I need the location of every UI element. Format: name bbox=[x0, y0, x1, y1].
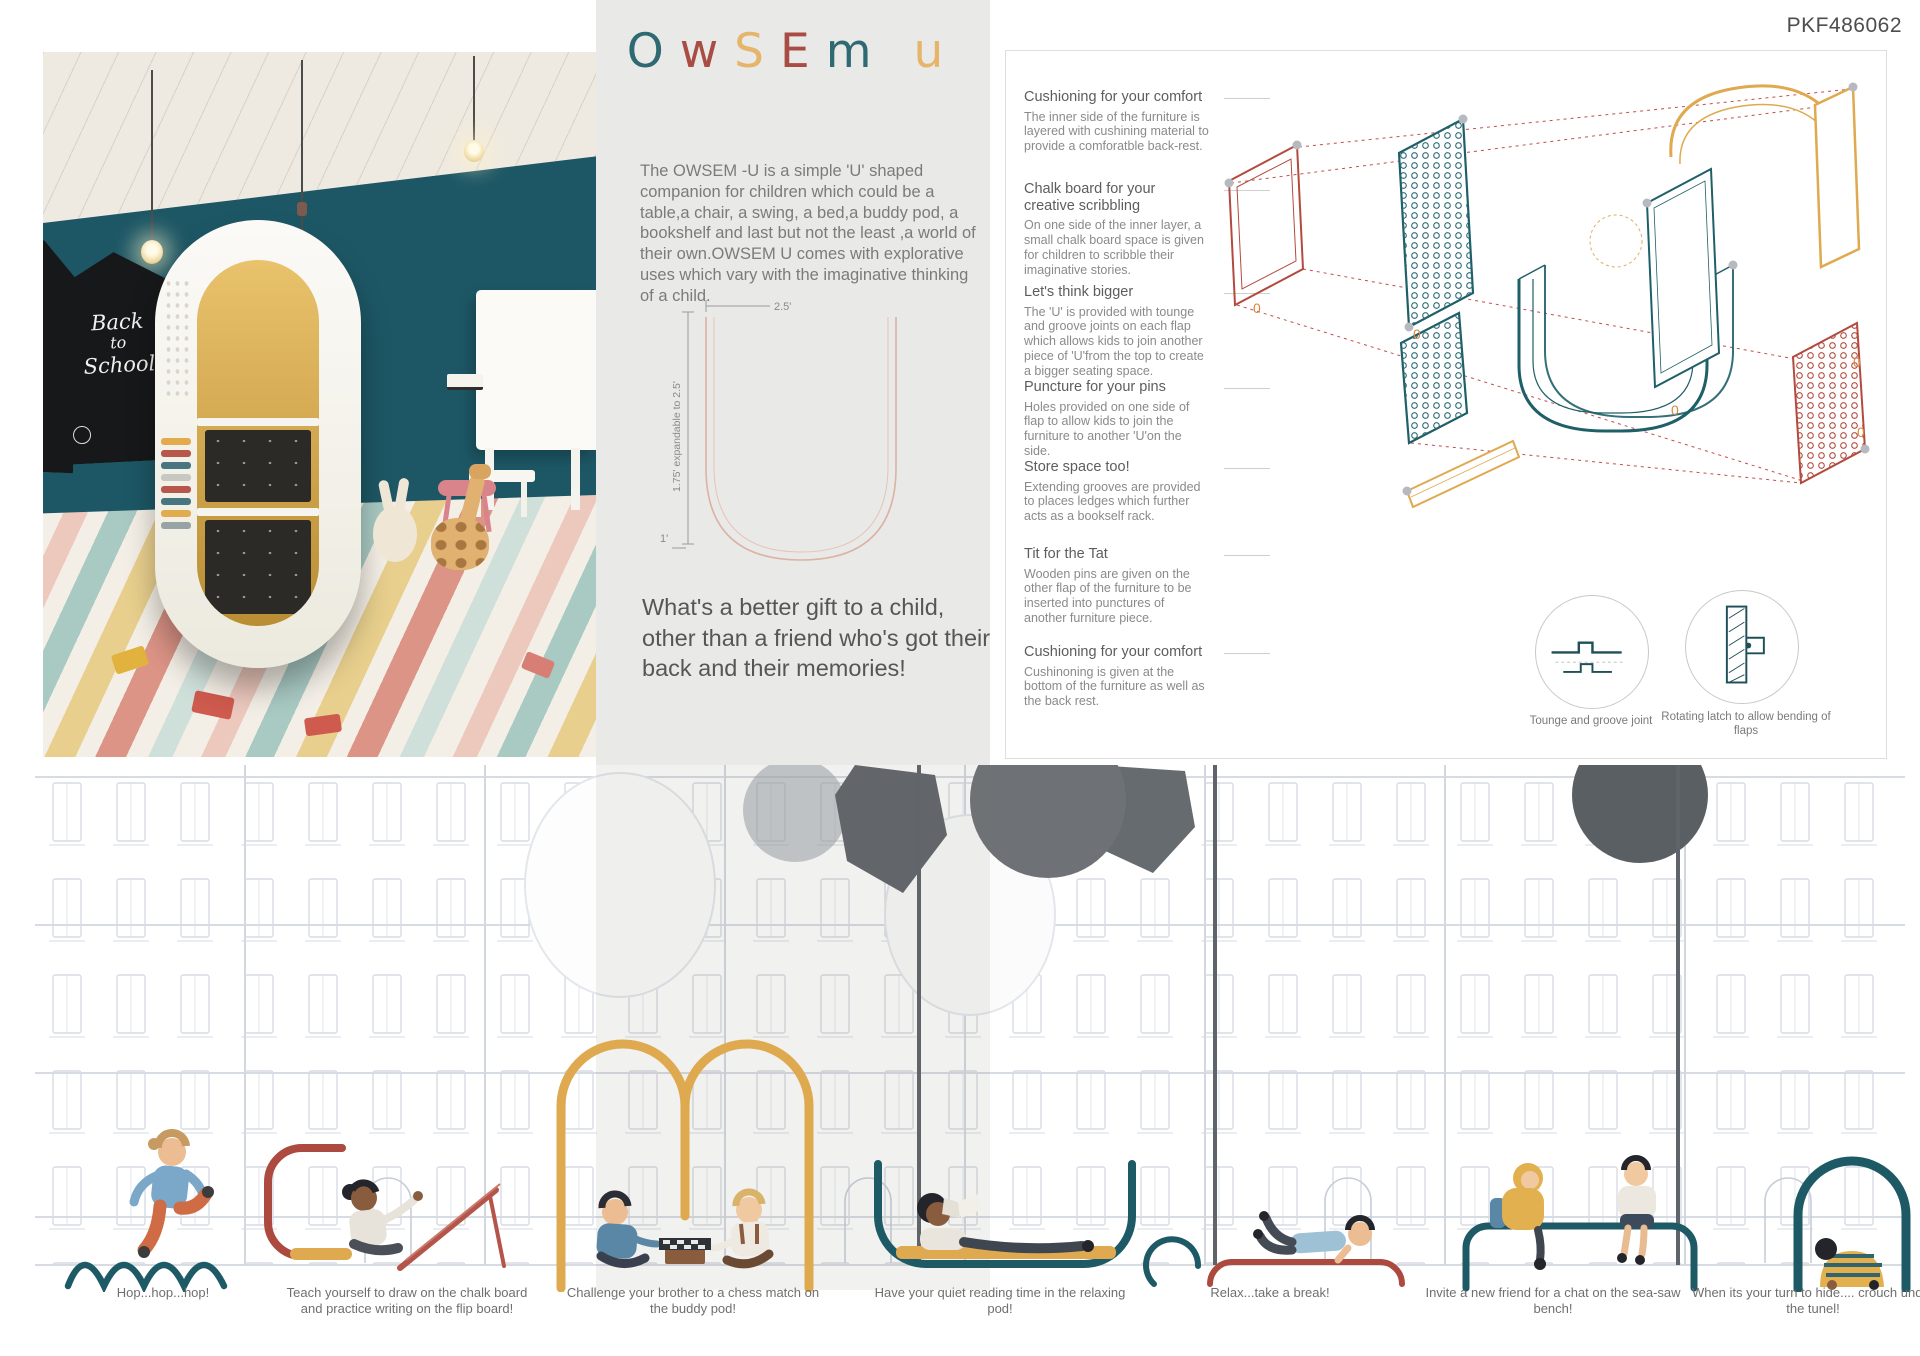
plush-bunny bbox=[373, 492, 423, 566]
feature-think-bigger: Let's think bigger The 'U' is provided w… bbox=[1024, 284, 1209, 378]
piano-leg bbox=[571, 448, 580, 510]
colored-louver-slats bbox=[161, 438, 191, 534]
bench-leg bbox=[521, 481, 527, 517]
leader-line bbox=[1224, 653, 1270, 654]
pendant-bulb bbox=[464, 140, 484, 162]
chess-kid-right bbox=[711, 1192, 770, 1264]
reading-child bbox=[917, 1193, 1094, 1252]
plush-giraffe bbox=[425, 490, 495, 574]
svg-text:0: 0 bbox=[1253, 300, 1261, 316]
red-perforated-flap bbox=[1793, 323, 1865, 483]
tongue-groove-drawing bbox=[1536, 596, 1645, 705]
pendant-cord bbox=[151, 70, 153, 242]
scene-caption: Invite a new friend for a chat on the se… bbox=[1423, 1285, 1683, 1318]
chalk-panel bbox=[205, 520, 311, 614]
chalk-globe-doodle bbox=[73, 426, 92, 445]
scene-hop-illustration bbox=[60, 1118, 230, 1292]
chess-set bbox=[659, 1238, 711, 1264]
feature-heading: Let's think bigger bbox=[1024, 284, 1209, 301]
white-flap-panel bbox=[1647, 169, 1719, 387]
furniture-interior bbox=[197, 260, 319, 626]
drawing-girl bbox=[342, 1183, 423, 1250]
product-title: OwSEmu bbox=[596, 24, 990, 79]
dimension-diagram: 2.5' 1.75' expandable to 2.5' 1' bbox=[652, 292, 932, 582]
piano-keys bbox=[447, 374, 483, 390]
feature-body: On one side of the inner layer, a small … bbox=[1024, 218, 1209, 277]
highlight-circle bbox=[1590, 215, 1642, 267]
scene-caption: Challenge your brother to a chess match … bbox=[563, 1285, 823, 1318]
feature-body: Wooden pins are given on the other flap … bbox=[1024, 567, 1209, 626]
feature-heading: Cushioning for your comfort bbox=[1024, 89, 1209, 106]
entry-code: PKF486062 bbox=[1787, 14, 1902, 38]
yellow-side-panel bbox=[1815, 87, 1859, 267]
scene-chalkboard-illustration bbox=[250, 1090, 530, 1292]
feature-storage: Store space too! Extending grooves are p… bbox=[1024, 459, 1209, 524]
red-bench bbox=[1210, 1262, 1402, 1284]
scene-buddy-pod-illustration bbox=[545, 1000, 825, 1292]
zero-markers: 0 0 0 0 0 bbox=[1253, 300, 1865, 440]
design-board: Back to School ✦ bbox=[0, 0, 1920, 1356]
pendant-bulb bbox=[141, 240, 163, 264]
chess-kid-left bbox=[596, 1194, 657, 1264]
feature-heading: Chalk board for your creative scribbling bbox=[1024, 181, 1209, 214]
svg-text:0: 0 bbox=[1413, 326, 1421, 342]
feature-body: The 'U' is provided with tounge and groo… bbox=[1024, 305, 1209, 379]
hopping-girl bbox=[134, 1133, 214, 1258]
detail-circle-latch bbox=[1685, 590, 1799, 704]
hoodie-kid bbox=[1490, 1163, 1546, 1270]
teal-perforated-flap bbox=[1399, 119, 1473, 327]
scene-caption: Relax...take a break! bbox=[1140, 1285, 1400, 1301]
svg-text:0: 0 bbox=[1857, 424, 1865, 440]
tagline: What's a better gift to a child, other t… bbox=[642, 592, 992, 684]
title-letter: O bbox=[627, 24, 680, 79]
chalk-panel bbox=[205, 430, 311, 502]
hop-bumps bbox=[68, 1265, 224, 1286]
product-photo: Back to School ✦ bbox=[43, 52, 596, 757]
detail-circle-joint bbox=[1535, 595, 1649, 709]
piano-body bbox=[476, 290, 596, 450]
owsem-u-furniture bbox=[155, 220, 361, 668]
title-letter: S bbox=[734, 24, 780, 79]
title-letter: u bbox=[914, 24, 960, 79]
feature-heading: Store space too! bbox=[1024, 459, 1209, 476]
dim-height-label: 1.75' expandable to 2.5' bbox=[671, 381, 683, 492]
feature-body: Cushinoning is given at the bottom of th… bbox=[1024, 665, 1209, 709]
feature-body: Holes provided on one side of flap to al… bbox=[1024, 400, 1209, 459]
scene-tunnel-illustration bbox=[1780, 1127, 1920, 1292]
detail-caption: Rotating latch to allow bending of flaps bbox=[1661, 711, 1831, 739]
yellow-curved-flap bbox=[1671, 86, 1827, 164]
svg-text:0: 0 bbox=[1671, 402, 1679, 418]
title-letter: w bbox=[680, 24, 734, 79]
pendant-joint bbox=[297, 202, 307, 216]
scene-seasaw-bench-illustration bbox=[1440, 1080, 1720, 1292]
feature-heading: Puncture for your pins bbox=[1024, 379, 1209, 396]
feature-body: The inner side of the furniture is layer… bbox=[1024, 110, 1209, 154]
yellow-bottom-plank bbox=[1407, 441, 1519, 507]
dim-width-label: 2.5' bbox=[774, 301, 791, 313]
teal-curl bbox=[1146, 1239, 1198, 1284]
exploded-view-diagram: 0 0 0 0 0 bbox=[1201, 61, 1891, 606]
scene-relaxing-pod-illustration bbox=[860, 1150, 1150, 1292]
detail-caption: Tounge and groove joint bbox=[1506, 715, 1676, 729]
shelf-bar bbox=[197, 418, 319, 426]
feature-punctures: Puncture for your pins Holes provided on… bbox=[1024, 379, 1209, 459]
scene-caption: Teach yourself to draw on the chalk boar… bbox=[277, 1285, 537, 1318]
pendant-cord bbox=[473, 56, 475, 142]
feature-cushioning-top: Cushioning for your comfort The inner si… bbox=[1024, 89, 1209, 154]
dim-base-label: 1' bbox=[660, 533, 668, 545]
red-panel-left bbox=[1229, 145, 1303, 305]
feature-wooden-pins: Tit for the Tat Wooden pins are given on… bbox=[1024, 546, 1209, 626]
center-column: OwSEmu The OWSEM -U is a simple 'U' shap… bbox=[596, 0, 990, 765]
teal-bench-frame bbox=[1466, 1226, 1694, 1288]
title-letter: m bbox=[826, 24, 888, 79]
scene-caption: When its your turn to hide.... crouch un… bbox=[1683, 1285, 1920, 1318]
friend-kid bbox=[1617, 1158, 1656, 1265]
product-description: The OWSEM -U is a simple 'U' shaped comp… bbox=[640, 161, 980, 306]
feature-heading: Cushioning for your comfort bbox=[1024, 644, 1209, 661]
feature-chalkboard: Chalk board for your creative scribbling… bbox=[1024, 181, 1209, 277]
perforation-holes bbox=[164, 278, 192, 400]
maroon-u-pod bbox=[268, 1148, 342, 1256]
crouching-child bbox=[1815, 1238, 1884, 1290]
title-letter: E bbox=[780, 24, 826, 79]
ceiling bbox=[43, 52, 596, 232]
street-scene-strip: Hop...hop...hop! Teach yourself to draw … bbox=[35, 765, 1905, 1356]
construction-lines bbox=[1231, 89, 1851, 483]
feature-heading: Tit for the Tat bbox=[1024, 546, 1209, 563]
yellow-cushion bbox=[290, 1248, 352, 1260]
shelf-bar bbox=[197, 508, 319, 516]
lounging-child bbox=[1253, 1211, 1372, 1260]
scene-caption: Have your quiet reading time in the rela… bbox=[870, 1285, 1130, 1318]
teal-perforated-flap-lower bbox=[1401, 313, 1467, 443]
feature-cushioning-bottom: Cushioning for your comfort Cushinoning … bbox=[1024, 644, 1209, 709]
scene-break-illustration bbox=[1140, 1172, 1430, 1292]
rotating-latch-drawing bbox=[1686, 591, 1795, 700]
svg-text:0: 0 bbox=[1853, 354, 1861, 370]
scene-caption: Hop...hop...hop! bbox=[33, 1285, 293, 1301]
technical-panel: Cushioning for your comfort The inner si… bbox=[1005, 50, 1887, 759]
feature-body: Extending grooves are provided to places… bbox=[1024, 480, 1209, 524]
